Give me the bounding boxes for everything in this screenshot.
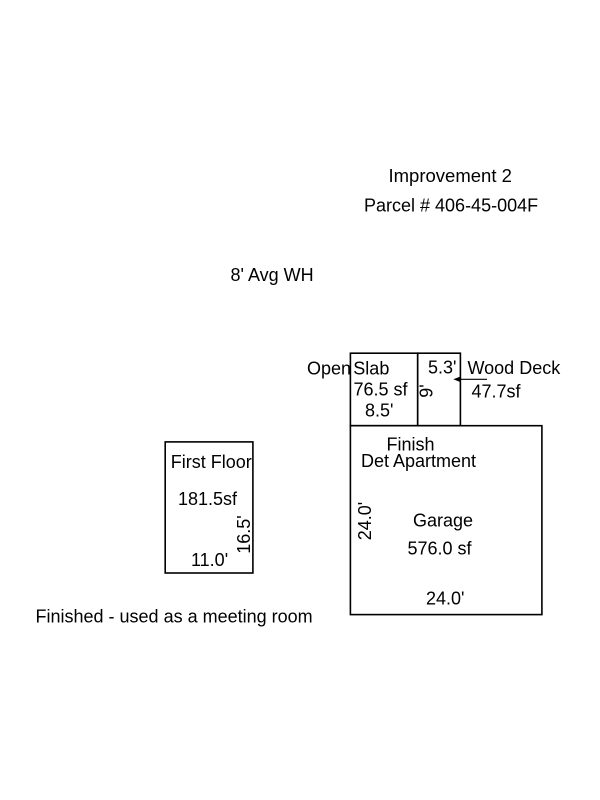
svg-text:Slab: Slab [353,358,389,378]
svg-text:24.0': 24.0' [426,589,464,609]
svg-text:Improvement 2: Improvement 2 [389,165,512,186]
svg-text:76.5 sf: 76.5 sf [354,380,409,400]
svg-text:Garage: Garage [413,511,473,531]
svg-text:576.0 sf: 576.0 sf [408,539,473,559]
svg-text:Det Apartment: Det Apartment [361,451,476,471]
svg-text:Finished - used as a meeting r: Finished - used as a meeting room [36,607,313,627]
svg-text:9': 9' [417,384,437,397]
svg-text:First Floor: First Floor [171,452,252,472]
svg-text:16.5': 16.5' [234,515,254,553]
svg-text:Open: Open [307,358,351,378]
svg-text:5.3': 5.3' [428,357,456,377]
svg-text:Parcel # 406-45-004F: Parcel # 406-45-004F [364,196,538,216]
svg-text:47.7sf: 47.7sf [472,381,522,401]
svg-text:8' Avg WH: 8' Avg WH [231,265,314,285]
svg-text:Wood Deck: Wood Deck [468,358,562,378]
svg-text:8.5': 8.5' [365,401,393,421]
svg-text:24.0': 24.0' [355,502,375,540]
svg-text:181.5sf: 181.5sf [178,489,238,509]
svg-text:11.0': 11.0' [191,550,228,570]
